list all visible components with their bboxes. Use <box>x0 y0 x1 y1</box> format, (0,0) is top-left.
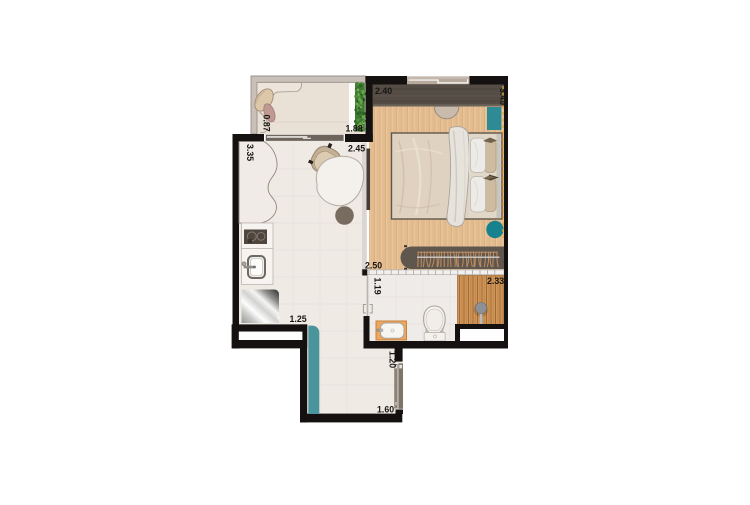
svg-text:2.50: 2.50 <box>365 261 382 271</box>
svg-text:1.19: 1.19 <box>373 278 383 295</box>
svg-text:2.33: 2.33 <box>487 276 504 286</box>
svg-text:1.60: 1.60 <box>377 405 394 415</box>
svg-text:0.87: 0.87 <box>262 115 272 132</box>
svg-text:1.20: 1.20 <box>388 351 398 368</box>
svg-text:1.88: 1.88 <box>346 124 363 134</box>
svg-text:3.35: 3.35 <box>245 144 255 161</box>
svg-text:1.25: 1.25 <box>290 314 307 324</box>
svg-text:2.45: 2.45 <box>348 144 365 154</box>
svg-text:3.40: 3.40 <box>498 88 508 105</box>
svg-text:2.40: 2.40 <box>375 86 392 96</box>
